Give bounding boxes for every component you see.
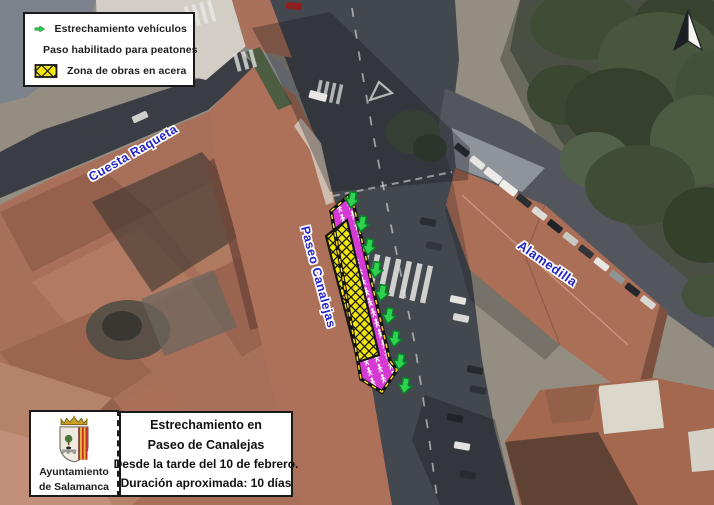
legend-item-vehicle-narrowing: Estrechamiento vehículos <box>34 21 187 36</box>
legend-item-works-zone: Zona de obras en acera <box>34 63 187 78</box>
notice-line-4: Duración aproximada: 10 días <box>121 474 292 492</box>
salamanca-coat-of-arms <box>52 415 96 465</box>
legend-label: Zona de obras en acera <box>67 65 187 77</box>
municipality-name-line1: Ayuntamiento <box>39 465 109 480</box>
municipality-name-line2: de Salamanca <box>39 480 109 495</box>
legend: Estrechamiento vehículos Paso habilitado… <box>23 12 195 87</box>
notice-line-2: Paseo de Canalejas <box>148 436 265 455</box>
legend-label: Estrechamiento vehículos <box>54 23 187 35</box>
legend-item-pedestrian-pass: Paso habilitado para peatones <box>34 42 187 57</box>
notice-box: Estrechamiento en Paseo de Canalejas Des… <box>119 411 293 497</box>
notice-line-1: Estrechamiento en <box>150 416 262 435</box>
municipality-box: Ayuntamiento de Salamanca <box>29 410 119 497</box>
notice-line-3: Desde la tarde del 10 de febrero. <box>114 455 299 473</box>
map-canvas: Estrechamiento vehículos Paso habilitado… <box>0 0 714 505</box>
vehicle-narrowing-arrow-icon <box>34 22 45 36</box>
works-zone-swatch-icon <box>34 64 58 78</box>
legend-label: Paso habilitado para peatones <box>43 44 198 56</box>
